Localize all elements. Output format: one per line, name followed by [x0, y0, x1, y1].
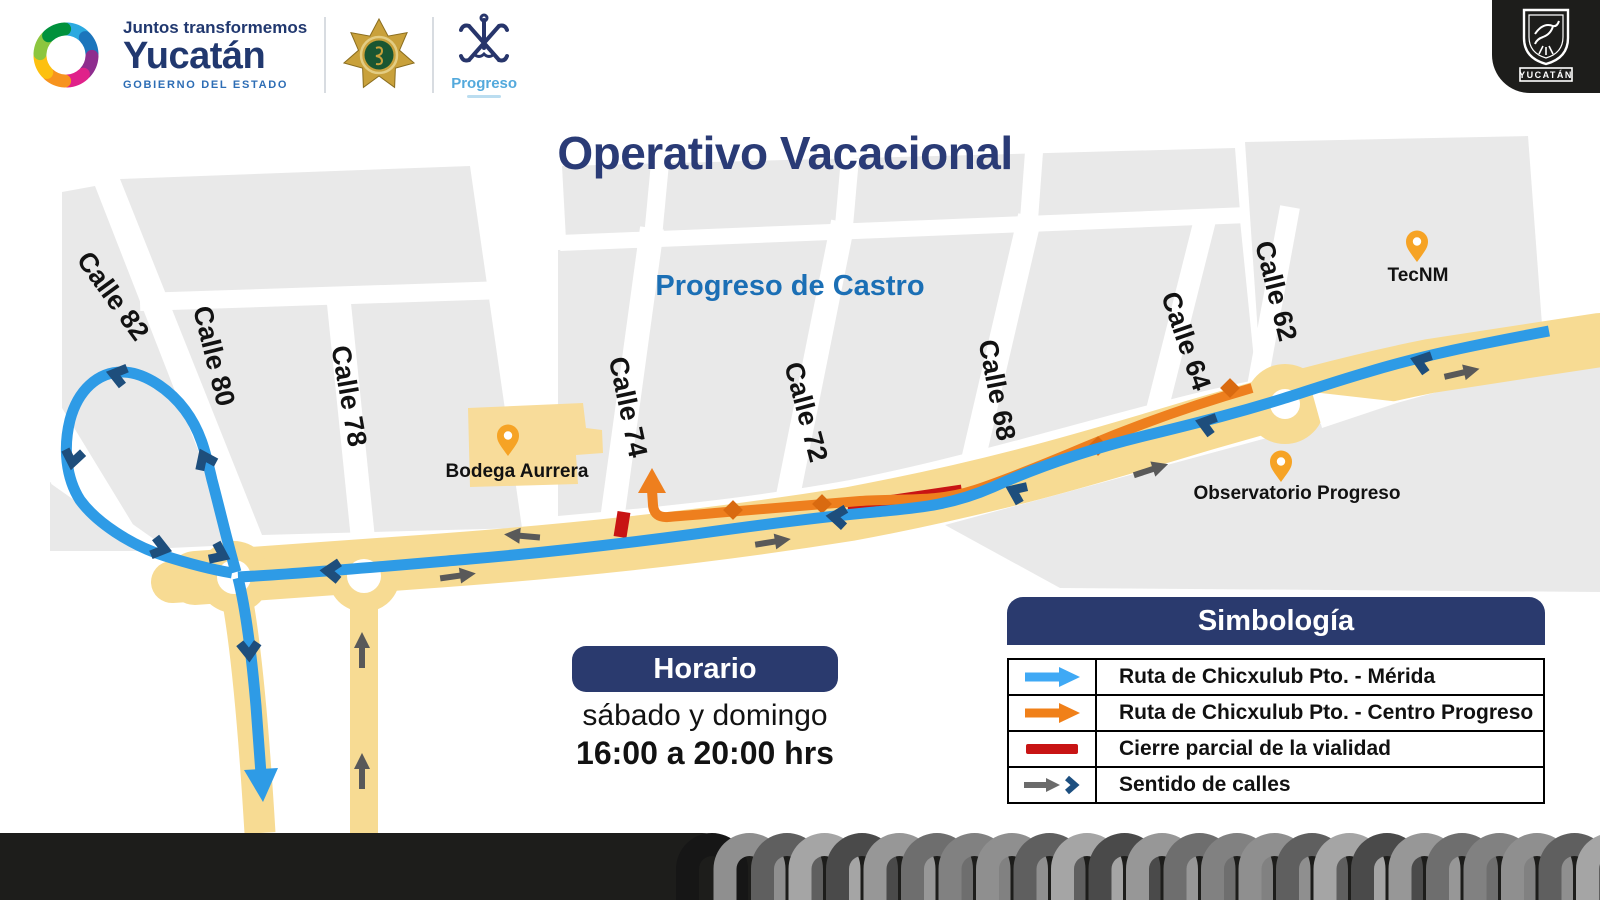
progreso-logo-label: Progreso — [451, 75, 517, 92]
legend-table: Ruta de Chicxulub Pto. - Mérida Ruta de … — [1007, 658, 1545, 804]
legend: Simbología Ruta de Chicxulub Pto. - Méri… — [1007, 597, 1545, 804]
legend-label: Cierre parcial de la vialidad — [1097, 737, 1391, 761]
legend-row-merida: Ruta de Chicxulub Pto. - Mérida — [1009, 660, 1543, 696]
header-divider — [432, 17, 434, 93]
area-label: Progreso de Castro — [655, 270, 924, 302]
orange-arrow-icon — [1009, 696, 1097, 730]
legend-title: Simbología — [1007, 597, 1545, 645]
gov-state-name: Yucatán — [123, 37, 307, 75]
tecnm-label: TecNM — [1388, 265, 1449, 286]
progreso-logo: Progreso — [451, 12, 517, 98]
yucatan-coat-of-arms-icon: YUCATÁN — [1510, 4, 1582, 90]
legend-label: Sentido de calles — [1097, 773, 1291, 797]
blue-arrow-icon — [1009, 660, 1097, 694]
header-divider — [324, 17, 326, 93]
corner-badge-label: YUCATÁN — [1519, 70, 1573, 80]
progreso-anchors-icon — [455, 12, 513, 74]
page-title: Operativo Vacacional — [0, 126, 1570, 180]
legend-row-cierre: Cierre parcial de la vialidad — [1009, 732, 1543, 768]
schedule-heading: Horario — [572, 646, 838, 692]
legend-label: Ruta de Chicxulub Pto. - Mérida — [1097, 665, 1435, 689]
closure-calle-74 — [620, 512, 624, 537]
schedule-hours: 16:00 a 20:00 hrs — [525, 735, 885, 772]
schedule-days: sábado y domingo — [525, 699, 885, 733]
footer-bar — [0, 833, 1600, 900]
legend-row-sentido: Sentido de calles — [1009, 768, 1543, 802]
red-bar-icon — [1009, 732, 1097, 766]
legend-label: Ruta de Chicxulub Pto. - Centro Progreso — [1097, 701, 1533, 725]
observatorio-label: Observatorio Progreso — [1194, 483, 1401, 504]
brand-bar: Juntos transformemos Yucatán GOBIERNO DE… — [26, 12, 517, 98]
yucatan-gov-logo-icon — [26, 15, 106, 95]
legend-row-centro: Ruta de Chicxulub Pto. - Centro Progreso — [1009, 696, 1543, 732]
schedule-box: Horario sábado y domingo 16:00 a 20:00 h… — [525, 646, 885, 772]
police-badge-icon — [343, 13, 415, 97]
progreso-logo-subline — [467, 95, 501, 98]
bodega-aurrera-label: Bodega Aurrera — [446, 461, 589, 482]
gov-state-sub: GOBIERNO DEL ESTADO — [123, 79, 307, 91]
gray-arrow-blue-chevron-icon — [1009, 768, 1097, 802]
yucatan-corner-badge: YUCATÁN — [1492, 0, 1600, 93]
page: Progreso de Castro Calle 82 Calle 80 Cal… — [0, 0, 1600, 900]
